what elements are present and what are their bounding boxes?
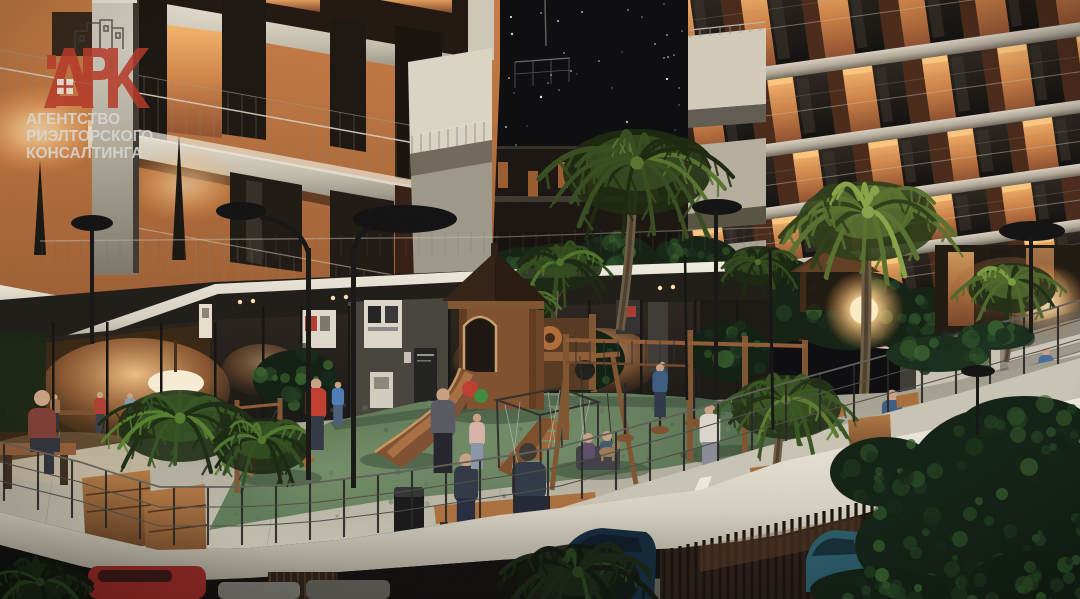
svg-text:АГЕНТСТВО: АГЕНТСТВО — [26, 111, 120, 128]
svg-text:РИЭЛТОРСКОГО: РИЭЛТОРСКОГО — [26, 128, 153, 145]
svg-text:КОНСАЛТИНГА: КОНСАЛТИНГА — [26, 145, 143, 162]
